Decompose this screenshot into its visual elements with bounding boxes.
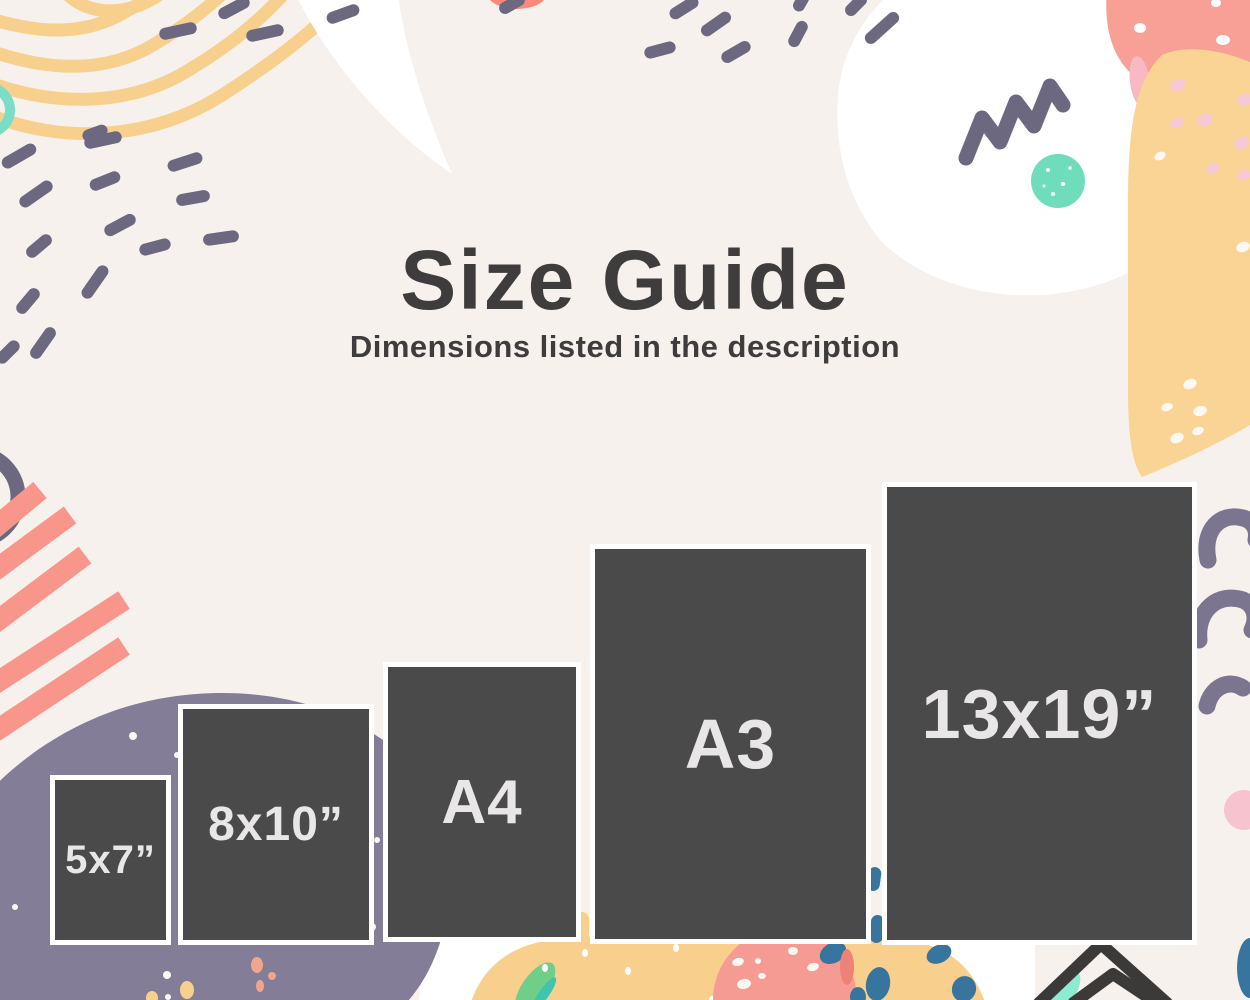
chevron-decoration	[1036, 944, 1168, 1000]
size-label-a4: A4	[441, 767, 522, 838]
size-label-5x7: 5x7”	[65, 838, 156, 883]
teal-dot-decoration	[1031, 154, 1085, 208]
header: Size Guide Dimensions listed in the desc…	[0, 238, 1250, 362]
white-leaf-decoration	[296, 0, 452, 174]
purple-hooks-decoration	[1199, 517, 1250, 706]
page-subtitle: Dimensions listed in the description	[0, 331, 1250, 362]
size-box-13x19: 13x19”	[882, 482, 1197, 945]
pink-dot-decoration	[1224, 790, 1250, 830]
size-box-8x10: 8x10”	[178, 704, 374, 945]
size-label-a3: A3	[685, 704, 776, 784]
page-title: Size Guide	[0, 238, 1250, 322]
size-box-5x7: 5x7”	[50, 775, 171, 945]
size-label-13x19: 13x19”	[922, 674, 1158, 754]
size-guide-graphic: Size Guide Dimensions listed in the desc…	[0, 0, 1250, 1000]
teal-arc-decoration	[0, 87, 10, 133]
size-box-a4: A4	[383, 662, 581, 942]
size-label-8x10: 8x10”	[208, 797, 344, 852]
size-box-a3: A3	[590, 544, 871, 944]
coral-sliver-decoration	[840, 949, 854, 985]
coral-stripes-decoration	[0, 490, 124, 748]
